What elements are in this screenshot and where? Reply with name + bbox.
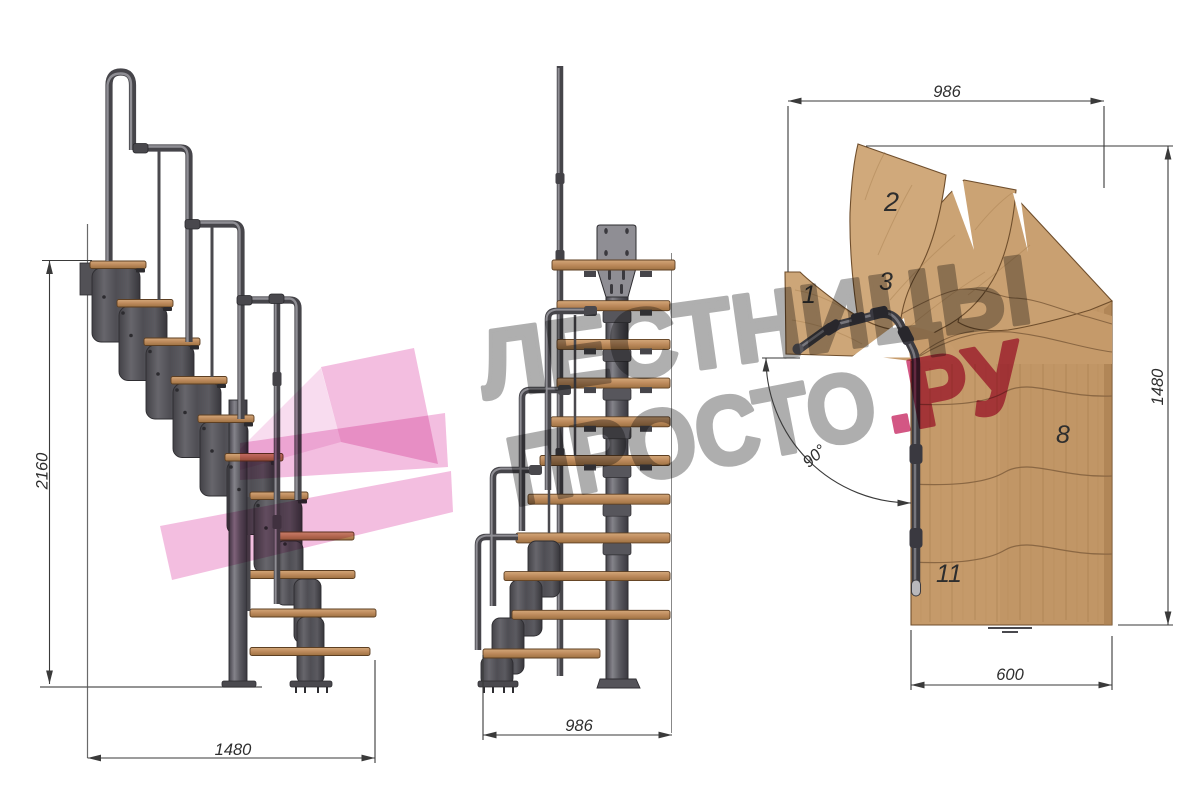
svg-text:986: 986 [933,83,961,101]
svg-text:1480: 1480 [1149,368,1167,406]
svg-text:2: 2 [883,187,899,217]
svg-text:11: 11 [936,560,962,588]
svg-text:8: 8 [1056,421,1070,449]
svg-text:986: 986 [565,717,593,735]
svg-text:2160: 2160 [34,452,52,491]
svg-text:600: 600 [996,666,1024,684]
svg-text:1480: 1480 [215,741,253,759]
